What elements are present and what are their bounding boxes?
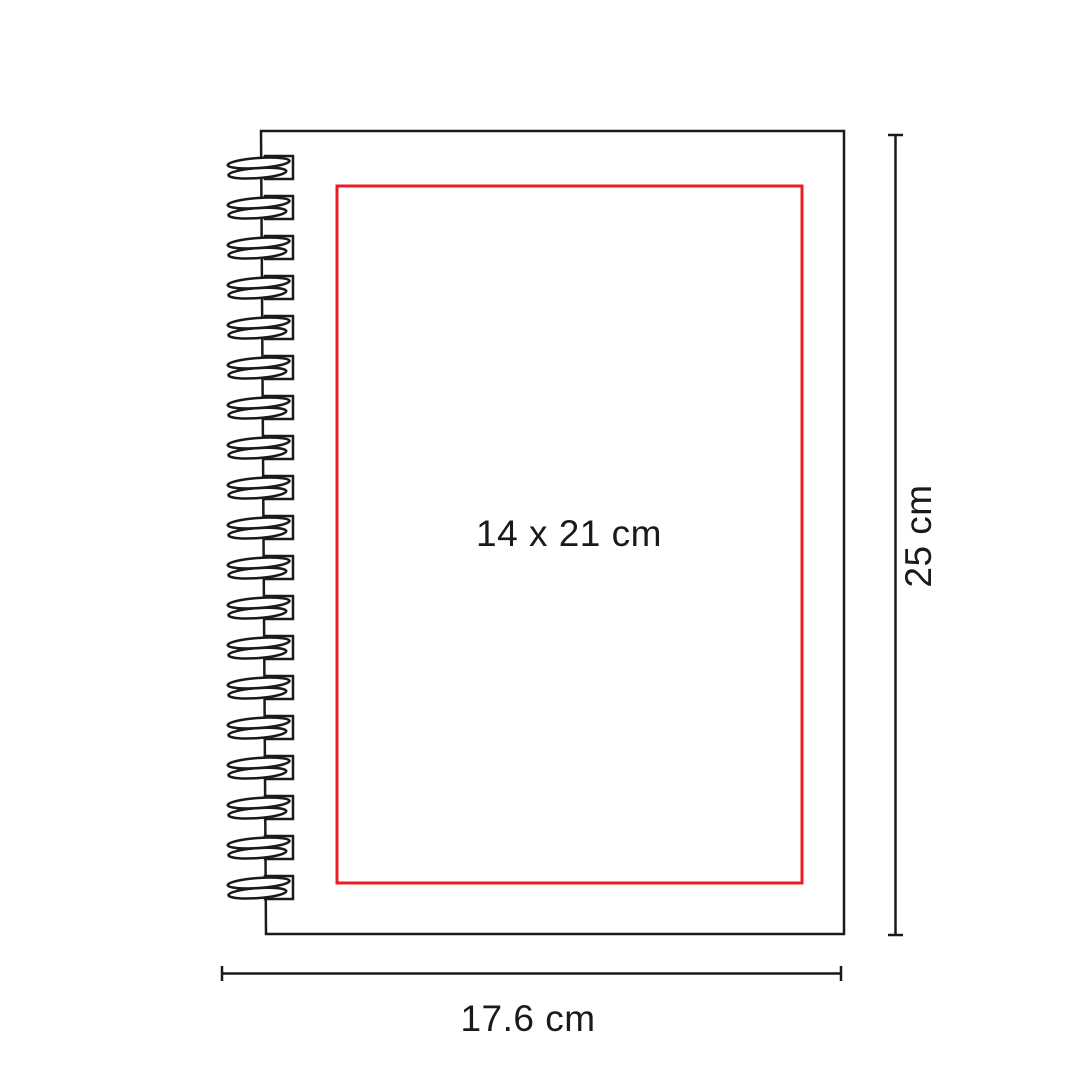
print-area-label: 14 x 21 cm [476, 513, 662, 555]
spiral-coil [227, 236, 293, 260]
spiral-coil [227, 556, 293, 580]
product-dimensions-diagram: 14 x 21 cm 25 cm 17.6 cm [0, 0, 1088, 1088]
spiral-coil [227, 796, 293, 820]
spiral-coil [227, 156, 293, 180]
spiral-coil [227, 356, 293, 380]
height-dimension-label: 25 cm [898, 484, 940, 587]
spiral-coil [227, 436, 293, 460]
width-dimension-label: 17.6 cm [460, 998, 595, 1040]
spiral-coil [227, 516, 293, 540]
spiral-coil [227, 756, 293, 780]
spiral-coil [227, 196, 293, 220]
spiral-coil [227, 276, 293, 300]
spiral-coil [227, 316, 293, 340]
spiral-coil [227, 836, 293, 860]
spiral-coil [227, 636, 293, 660]
spiral-coil [227, 596, 293, 620]
spiral-coil [227, 476, 293, 500]
spiral-binding [227, 156, 293, 900]
spiral-coil [227, 876, 293, 900]
spiral-coil [227, 676, 293, 700]
width-dimension-line [222, 966, 841, 981]
spiral-coil [227, 716, 293, 740]
spiral-coil [227, 396, 293, 420]
